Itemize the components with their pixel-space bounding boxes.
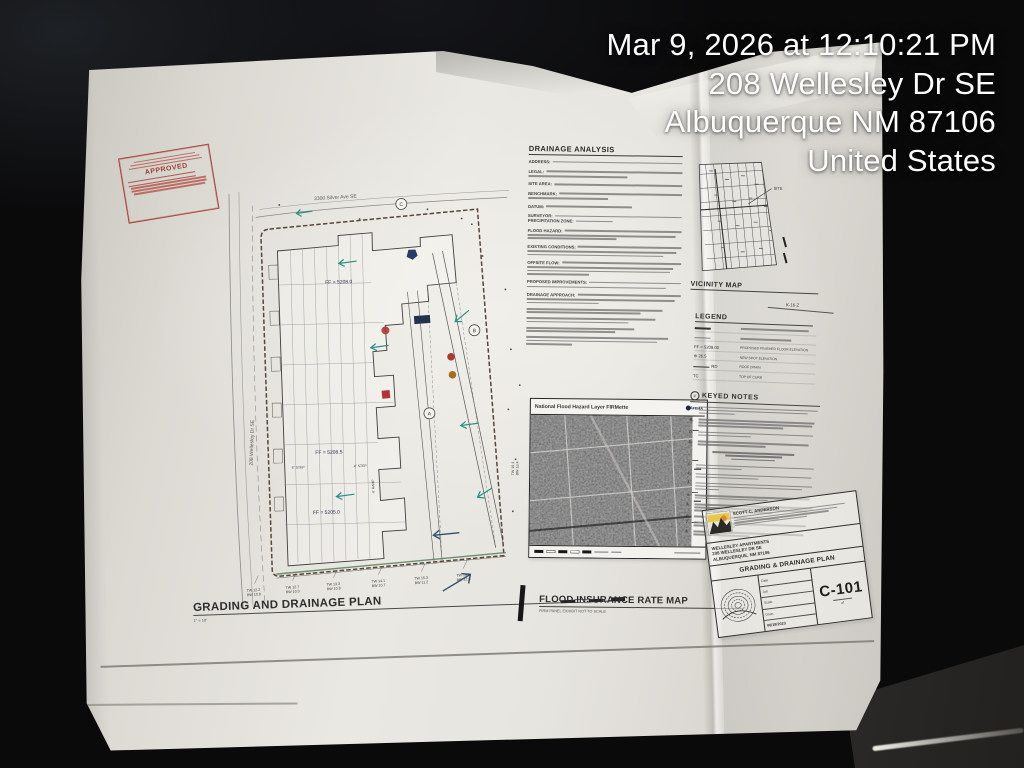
legend-panel: LEGEND FF = 5208.00PROPOSED FINISHED FLO… — [693, 313, 817, 387]
overlay-street: 208 Wellesley Dr SE — [607, 65, 997, 104]
keyed-notes-title: KEYED NOTES — [702, 392, 759, 401]
drainage-paragraph: SITE AREA: — [528, 181, 682, 188]
flood-map-panel: National Flood Hazard Layer FIRMette FEM… — [528, 398, 708, 560]
timestamp-overlay: Mar 9, 2026 at 12:10:21 PM 208 Wellesley… — [607, 26, 997, 180]
sheet-number-cell: C-101 of — [811, 562, 872, 624]
drainage-paragraph: OFFSITE FLOW: — [527, 260, 681, 277]
drainage-paragraph — [526, 327, 680, 334]
svg-text:TW 16.0BW 12.0: TW 16.0BW 12.0 — [456, 573, 470, 582]
svg-text:TW 15.3BW 11.2: TW 15.3BW 11.2 — [414, 576, 428, 585]
ff-elevation-label: FF = 5208.0 — [325, 279, 352, 286]
drainage-paragraph — [526, 336, 680, 346]
drainage-paragraph — [526, 317, 680, 324]
svg-text:TW 12.2BW 10.8: TW 12.2BW 10.8 — [247, 588, 261, 597]
approval-stamp: APPROVED — [118, 144, 220, 224]
drainage-paragraph: DATUM: — [528, 204, 682, 211]
private-drainage-note — [696, 450, 810, 462]
title-block-info-grid: Date Job Scale Drwn 06/19/2023 — [758, 569, 818, 631]
orange-circle-marker — [449, 371, 457, 379]
red-square-marker — [382, 390, 391, 399]
keyed-note-symbol-icon: # — [690, 391, 699, 400]
engineer-seal — [712, 576, 766, 638]
ff-elevation-label: FF = 5208.5 — [315, 449, 342, 456]
paper-edge-shade — [68, 57, 111, 751]
flood-map-header-title: National Flood Hazard Layer FIRMette — [535, 403, 628, 410]
step-label: 4" STEP — [354, 464, 368, 468]
svg-text:TW 16.3BW 13.4: TW 16.3BW 13.4 — [511, 461, 520, 475]
overlay-datetime: Mar 9, 2026 at 12:10:21 PM — [607, 26, 997, 65]
drainage-paragraph: EXISTING CONDITIONS: — [527, 244, 681, 258]
flood-map-aerial — [529, 414, 704, 547]
drainage-paragraph: SURVEYOR:PRECIPITATION ZONE: — [528, 213, 682, 225]
legend-row: TCTOP OF CURB — [693, 373, 815, 384]
seal-drawing — [715, 581, 761, 632]
street-label-top: 3300 Silver Ave SE — [314, 194, 358, 203]
callout-c: C — [399, 202, 403, 208]
overlay-country: United States — [607, 142, 997, 181]
ff-elevation-label: FF = 5205.0 — [313, 510, 340, 517]
svg-text:TW 12.7BW 10.0: TW 12.7BW 10.0 — [285, 585, 299, 594]
drainage-paragraph — [527, 308, 681, 315]
blue-inlet-marker — [414, 315, 431, 324]
vicinity-site-label: SITE — [774, 186, 783, 191]
photo-scene: APPROVED — [0, 0, 1024, 768]
firm-logo — [705, 510, 732, 535]
keyed-note-callouts — [396, 197, 482, 420]
title-block: SCOTT C. ANDERSON WELLESLEY APARTMENTS 2… — [702, 490, 873, 638]
sheet-edge-line-2 — [87, 702, 297, 705]
sheet-number: C-101 — [818, 579, 863, 601]
overlay-city: Albuquerque NM 87106 — [607, 103, 997, 142]
flood-map-scalebar — [529, 545, 705, 559]
site-plan-drawing: C B A 3300 Silver Ave SE 208 Wellesley D… — [218, 159, 529, 616]
drainage-paragraph: DRAINAGE APPROACH: — [527, 292, 681, 306]
ramp-label: 6' RAMP — [371, 479, 375, 493]
svg-text:TW 13.3BW 10.8: TW 13.3BW 10.8 — [326, 582, 340, 591]
street-label-left: 208 Wellesley Dr SE — [249, 419, 256, 466]
vicinity-grid-ref: K-16-Z — [786, 302, 800, 307]
red-circle-marker — [447, 353, 455, 361]
sheet-of-label: of — [833, 598, 853, 606]
drainage-paragraph: PROPOSED IMPROVEMENTS: — [527, 279, 681, 289]
svg-text:TW 14.1BW 10.7: TW 14.1BW 10.7 — [371, 579, 385, 588]
step-label: 6" STEP — [292, 465, 306, 469]
drainage-paragraph: BENCHMARK: — [528, 191, 682, 201]
drainage-paragraph: FLOOD HAZARD: — [528, 228, 682, 242]
